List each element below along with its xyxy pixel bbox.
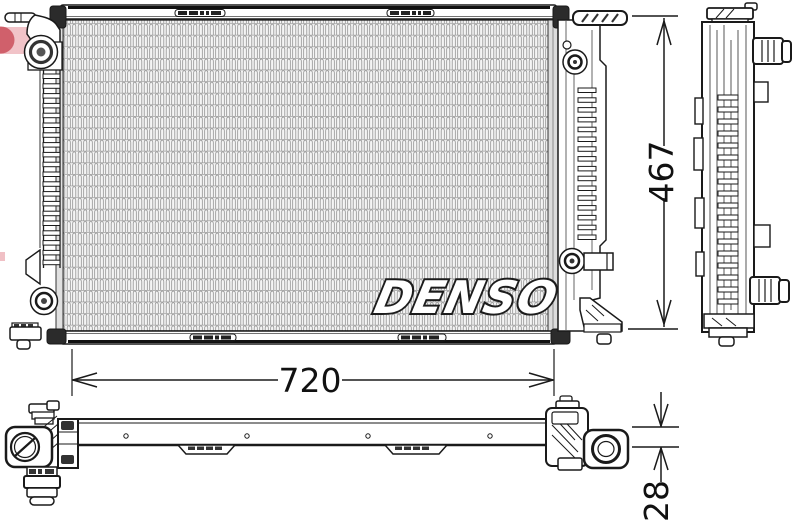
denso-brand-watermark: DENSO bbox=[370, 271, 563, 323]
width-dimension-label: 720 bbox=[279, 361, 342, 400]
dimension-height-467: 467 bbox=[628, 16, 681, 329]
radiator-technical-drawing: 467 720 28 DENSO bbox=[0, 0, 800, 520]
left-foot bbox=[10, 323, 41, 349]
height-dimension-label: 467 bbox=[642, 141, 681, 204]
side-right-hooks bbox=[754, 82, 770, 247]
drawing-canvas: 467 720 28 DENSO bbox=[0, 0, 800, 520]
bottom-header bbox=[47, 329, 570, 344]
side-bottom-pipe bbox=[750, 277, 789, 304]
hose-port bbox=[584, 430, 628, 468]
radiator-top-view bbox=[6, 396, 628, 505]
dimension-width-720: 720 bbox=[72, 349, 554, 400]
outlet-pipe-stub bbox=[584, 253, 613, 270]
right-foot bbox=[580, 298, 622, 344]
filler-cap bbox=[11, 433, 39, 461]
right-top-bracket bbox=[573, 11, 627, 25]
top-view-right-fitting bbox=[546, 396, 628, 470]
side-top-pipe bbox=[753, 38, 791, 64]
radiator-side-view bbox=[694, 3, 791, 346]
depth-dimension-label: 28 bbox=[637, 480, 676, 520]
top-view-left-assembly bbox=[6, 401, 78, 505]
top-view-bar bbox=[60, 419, 548, 454]
side-foot bbox=[704, 314, 754, 346]
right-tank bbox=[558, 11, 627, 344]
left-tank bbox=[5, 13, 62, 349]
dimension-depth-28: 28 bbox=[632, 392, 679, 520]
